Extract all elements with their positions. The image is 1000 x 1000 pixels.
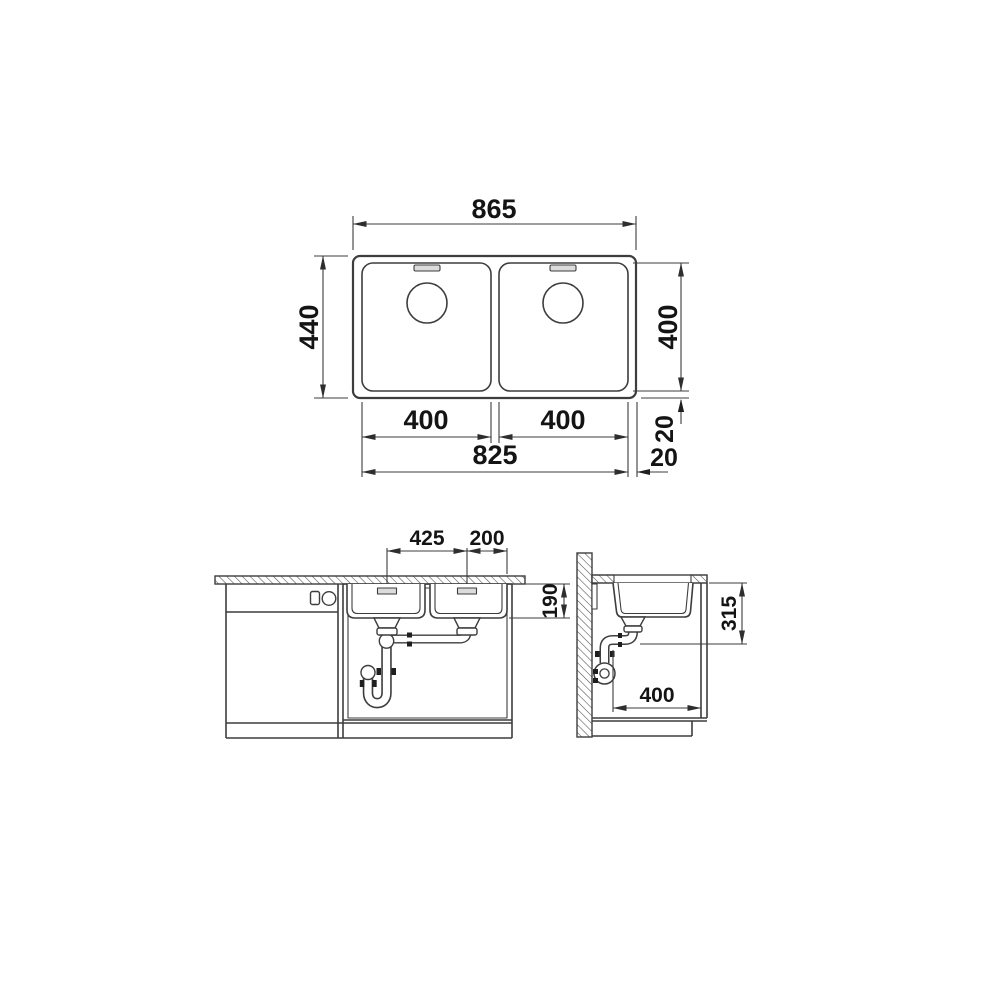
dim-drain-spacing: 425	[409, 527, 444, 550]
wall-outlet-pipe	[600, 669, 609, 678]
countertop-hatch-front	[691, 575, 707, 583]
bowl-section-side	[613, 583, 693, 617]
dim-left-bowl-width: 400	[403, 405, 448, 435]
left-bowl	[362, 263, 491, 391]
side-drain-funnel	[621, 617, 645, 626]
trap-inlet-fitting	[361, 666, 375, 680]
arrow-rim-bottom	[678, 399, 684, 412]
dim-right-bowl-width: 400	[540, 405, 585, 435]
wall-section	[577, 553, 592, 737]
left-drain-hole	[407, 283, 447, 323]
appliance-knob-symbol	[322, 592, 336, 606]
left-drain-funnel	[374, 618, 400, 628]
bowl-sections-front	[347, 584, 507, 618]
appliance-switch-symbol	[311, 592, 320, 605]
tee-fitting	[379, 634, 393, 648]
dim-bowls-span: 825	[472, 440, 517, 470]
left-overflow-slot	[414, 265, 440, 271]
sink-spec-sheet: 865 440 400 20 400 400 825 20	[0, 0, 1000, 1000]
dim-bowl-depth: 400	[653, 304, 683, 349]
right-overflow-front	[458, 588, 477, 594]
dim-drain-to-edge: 200	[469, 527, 504, 550]
front-view: 425 200 190	[215, 527, 570, 738]
dim-rim-right: 20	[650, 444, 678, 472]
countertop-hatch-back	[592, 575, 614, 583]
dim-drain-height: 315	[718, 596, 741, 631]
wall-bracket	[592, 584, 597, 609]
drain-plumbing-side	[593, 617, 645, 684]
bowl-side-outer	[613, 583, 693, 617]
side-drain-nut	[624, 626, 642, 632]
sink-plan-outline	[353, 256, 636, 398]
dim-rim-bottom: 20	[651, 415, 679, 443]
drain-plumbing-front	[360, 618, 480, 703]
left-overflow-front	[378, 588, 397, 594]
left-drain-nut	[377, 628, 397, 635]
countertop-section	[215, 576, 525, 584]
right-drain-hole	[543, 283, 583, 323]
top-view: 865 440 400 20 400 400 825 20	[294, 194, 689, 477]
side-view: 315 400	[577, 553, 747, 737]
right-drain-funnel	[454, 618, 480, 628]
dim-total-depth: 440	[294, 304, 324, 349]
dim-total-width: 865	[471, 194, 516, 224]
right-drain-nut	[457, 628, 477, 635]
right-bowl	[499, 263, 628, 391]
dim-base-depth: 400	[639, 684, 674, 707]
right-overflow-slot	[550, 265, 576, 271]
dim-bowl-inner-depth: 190	[539, 583, 562, 618]
arrow-rim-right	[637, 469, 650, 475]
sink-technical-drawing: 865 440 400 20 400 400 825 20	[0, 0, 1000, 1000]
